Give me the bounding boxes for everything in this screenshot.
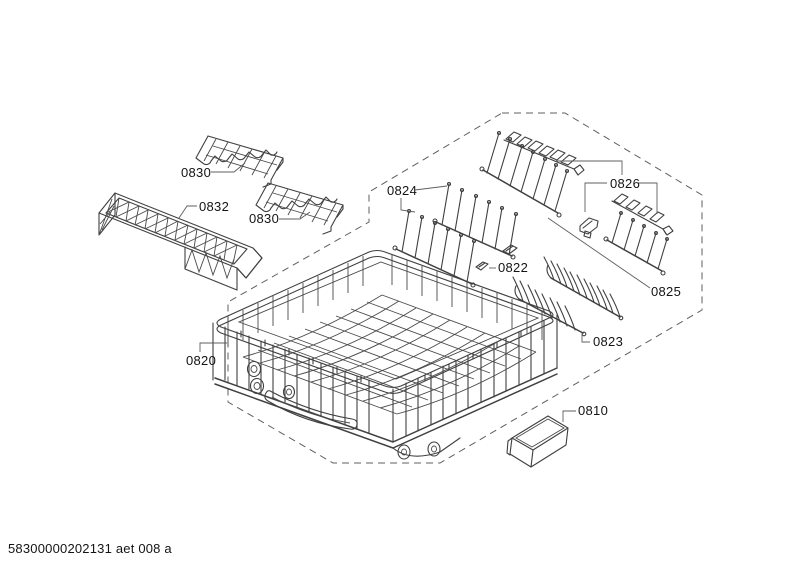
part-0825-tine-row-small [604,212,668,275]
part-0825-tine-row-large [480,132,569,218]
part-label-0824: 0824 [387,184,417,197]
part-0826-pivot-clip [580,218,598,238]
part-label-0830-top: 0830 [181,166,211,179]
part-0826-step-rail-large [504,132,584,175]
part-0830-comb-bottom [256,183,343,234]
part-label-0820: 0820 [186,354,216,367]
part-0810-tray [507,416,568,467]
diagram-canvas [0,0,800,566]
part-label-0810: 0810 [578,404,608,417]
part-0832-tray [99,193,262,290]
parts-diagram-page: 0830 0832 0830 0824 0826 0825 0822 0823 … [0,0,800,566]
part-label-0825: 0825 [651,285,681,298]
dashed-boundary [228,113,702,463]
document-code: 58300000202131 aet 008 a [8,541,172,556]
part-label-0823: 0823 [593,335,623,348]
part-label-0830-bottom: 0830 [249,212,279,225]
part-label-0826: 0826 [610,177,640,190]
part-0823-row-front [513,277,586,336]
part-label-0832: 0832 [199,200,229,213]
part-0824-tine-row-back [433,183,518,260]
part-label-0822: 0822 [498,261,528,274]
